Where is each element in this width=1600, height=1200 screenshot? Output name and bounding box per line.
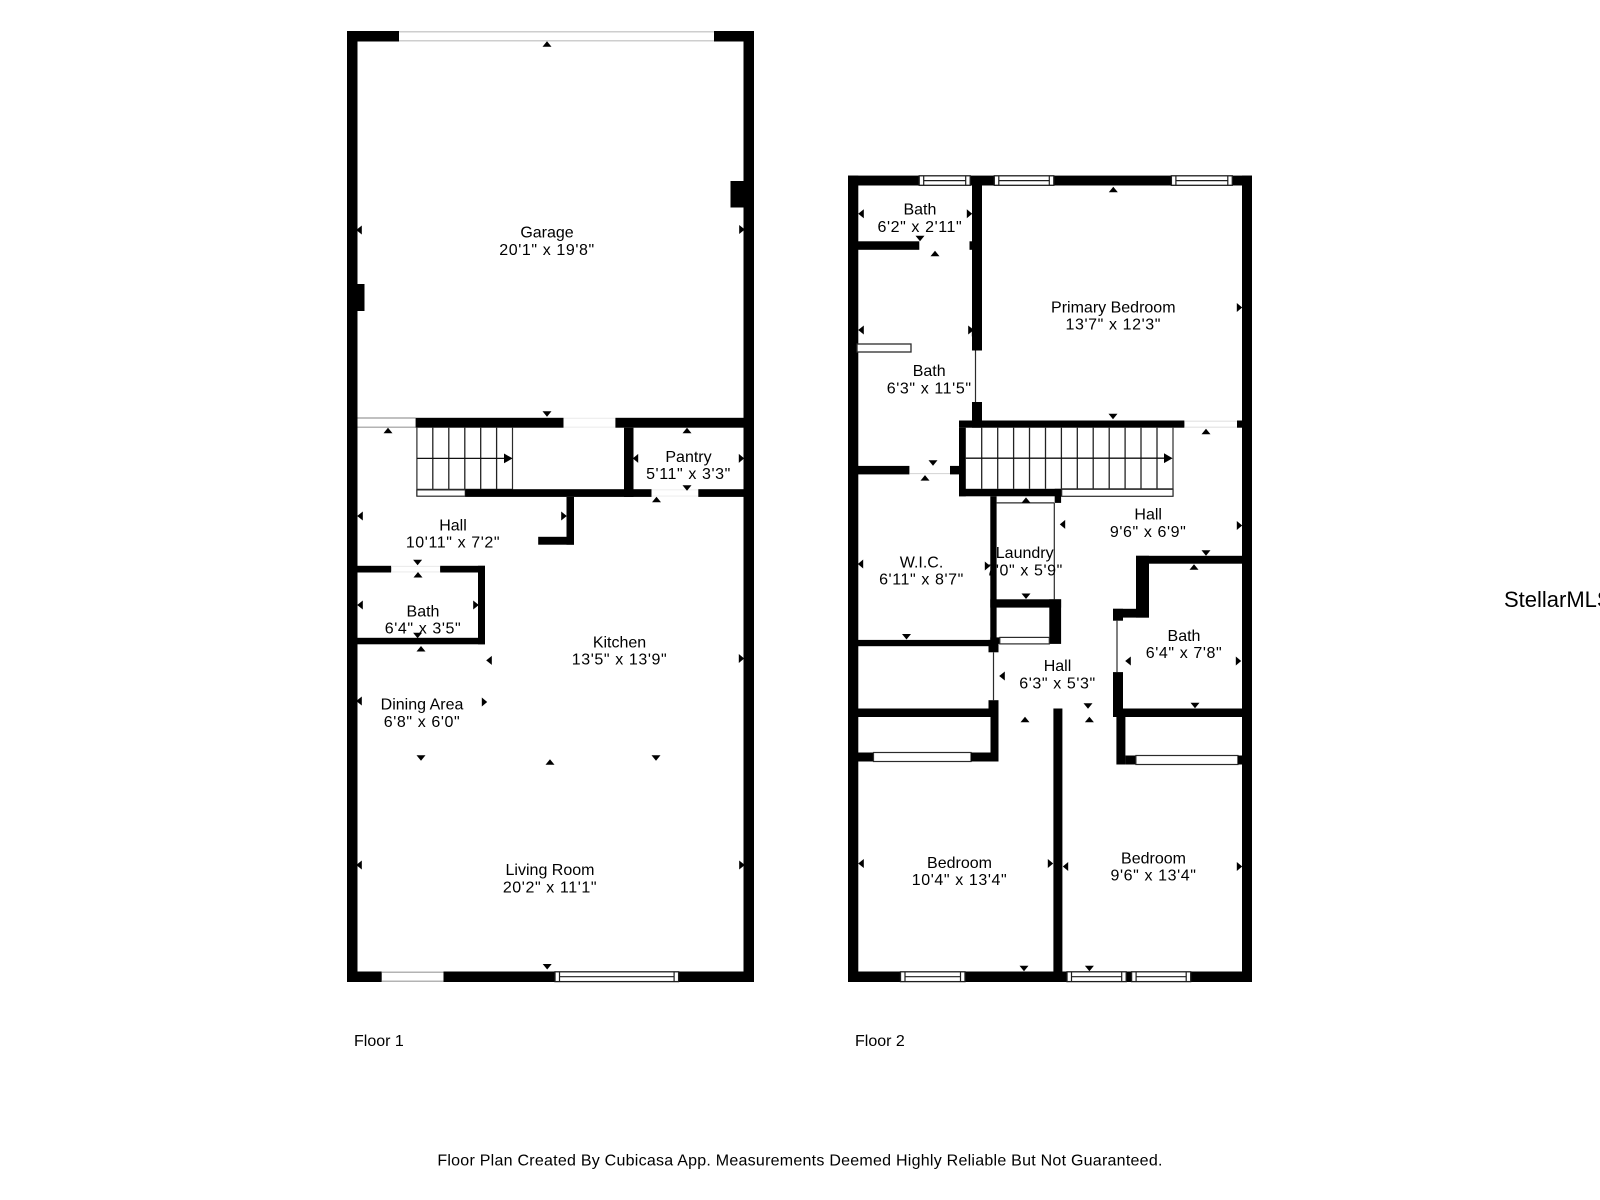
svg-text:Primary Bedroom: Primary Bedroom (1051, 299, 1175, 316)
svg-text:Garage: Garage (520, 225, 573, 242)
svg-text:6'11" x 8'7": 6'11" x 8'7" (879, 572, 964, 589)
svg-text:Bath: Bath (407, 603, 440, 620)
svg-text:Bath: Bath (1168, 628, 1201, 645)
svg-text:Hall: Hall (439, 517, 467, 534)
svg-text:9'6" x 6'9": 9'6" x 6'9" (1110, 524, 1187, 541)
svg-text:6'4" x 7'8": 6'4" x 7'8" (1146, 645, 1223, 662)
svg-text:6'3" x 11'5": 6'3" x 11'5" (887, 380, 972, 397)
svg-text:13'5" x 13'9": 13'5" x 13'9" (572, 652, 668, 669)
svg-text:Dining Area: Dining Area (381, 697, 464, 714)
svg-text:Bath: Bath (913, 363, 946, 380)
svg-text:Bath: Bath (903, 202, 936, 219)
svg-text:6'8" x 6'0": 6'8" x 6'0" (384, 714, 461, 731)
svg-text:5'11" x 3'3": 5'11" x 3'3" (646, 466, 731, 483)
svg-text:7'0" x 5'9": 7'0" x 5'9" (986, 562, 1063, 579)
svg-text:StellarMLS: StellarMLS (1504, 587, 1600, 612)
svg-text:10'4" x 13'4": 10'4" x 13'4" (912, 872, 1008, 889)
svg-text:Bedroom: Bedroom (1121, 851, 1186, 868)
svg-text:6'4" x 3'5": 6'4" x 3'5" (385, 621, 462, 638)
svg-text:Floor 1: Floor 1 (354, 1033, 404, 1050)
svg-text:Floor Plan Created By Cubicasa: Floor Plan Created By Cubicasa App. Meas… (437, 1153, 1162, 1170)
svg-text:Floor 2: Floor 2 (855, 1033, 905, 1050)
svg-text:Pantry: Pantry (665, 449, 711, 466)
svg-text:Living Room: Living Room (506, 862, 595, 879)
svg-text:Hall: Hall (1134, 507, 1162, 524)
svg-text:13'7" x 12'3": 13'7" x 12'3" (1066, 317, 1162, 334)
svg-text:W.I.C.: W.I.C. (900, 555, 944, 572)
svg-text:Laundry: Laundry (996, 545, 1054, 562)
svg-text:Hall: Hall (1044, 658, 1072, 675)
svg-text:9'6" x 13'4": 9'6" x 13'4" (1110, 868, 1196, 885)
svg-text:20'2" x 11'1": 20'2" x 11'1" (503, 879, 597, 896)
svg-text:Bedroom: Bedroom (927, 855, 992, 872)
svg-text:20'1" x 19'8": 20'1" x 19'8" (499, 242, 595, 259)
svg-text:10'11" x 7'2": 10'11" x 7'2" (406, 535, 500, 552)
svg-text:6'3" x 5'3": 6'3" x 5'3" (1019, 675, 1096, 692)
svg-text:6'2" x 2'11": 6'2" x 2'11" (877, 219, 962, 236)
svg-text:Kitchen: Kitchen (593, 635, 646, 652)
